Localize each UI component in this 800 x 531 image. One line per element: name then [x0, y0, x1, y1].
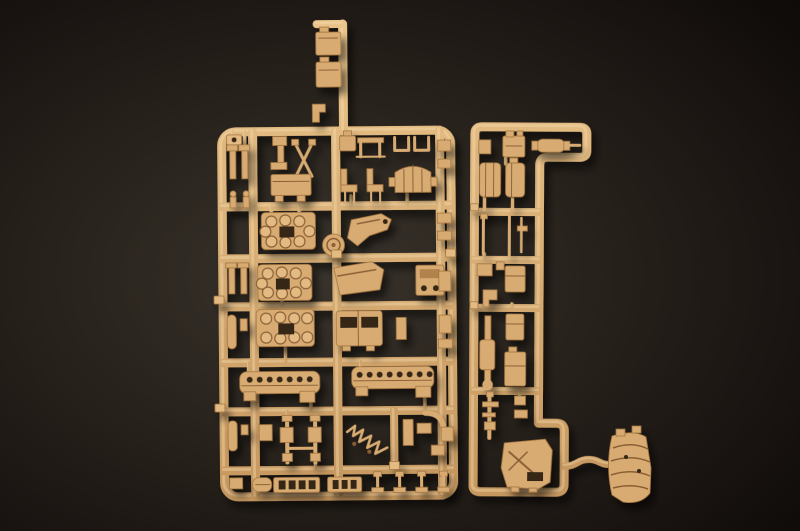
right-sprue-parts-shape — [482, 402, 498, 407]
left-sprue-parts-shape — [438, 487, 450, 492]
left-sprue-parts-shape — [261, 313, 272, 324]
left-sprue-parts-shape — [351, 480, 357, 489]
left-sprue-parts-shape — [308, 427, 321, 442]
left-sprue-parts-shape — [372, 488, 384, 493]
left-sprue-parts-shape — [302, 313, 313, 324]
left-sprue-parts-shape — [383, 219, 388, 224]
left-sprue-parts-shape — [356, 387, 368, 396]
left-sprue-parts-shape — [239, 145, 250, 151]
left-sprue-parts-shape — [302, 332, 313, 343]
left-sprue-parts-shape — [309, 480, 316, 489]
studio-background — [0, 0, 800, 531]
left-sprue-parts-shape — [280, 237, 291, 248]
left-sprue-parts-shape — [276, 288, 287, 299]
left-sprue-parts-shape — [333, 480, 339, 489]
photo-canvas — [0, 0, 800, 531]
left-sprue-parts-shape — [257, 377, 263, 383]
left-sprue-parts-shape — [437, 213, 451, 223]
left-sprue-parts-shape — [342, 346, 350, 351]
left-sprue-parts-shape — [340, 136, 356, 151]
left-sprue-parts-shape — [241, 425, 248, 435]
left-sprue-parts-shape — [240, 319, 247, 331]
left-sprue-parts-shape — [261, 332, 272, 343]
left-sprue-parts-shape — [241, 267, 247, 294]
left-sprue-parts-shape — [279, 480, 286, 489]
left-sprue-parts-shape — [292, 139, 299, 145]
left-sprue-parts-shape — [320, 57, 329, 62]
left-sprue-parts-shape — [421, 285, 427, 291]
left-sprue-parts-shape — [438, 159, 451, 168]
left-sprue-parts-shape — [304, 226, 315, 237]
hatch-part — [316, 62, 341, 87]
shock-absorber-part — [485, 316, 491, 342]
left-sprue-parts-shape — [294, 236, 305, 247]
left-sprue-parts-shape — [309, 139, 316, 145]
right-sprue-parts-shape — [506, 131, 514, 137]
left-sprue-parts-shape — [289, 480, 296, 489]
right-sprue-parts-shape — [529, 488, 537, 492]
left-sprue-parts-shape — [394, 487, 406, 492]
left-sprue-parts-shape — [238, 263, 249, 268]
left-sprue-parts-shape — [361, 317, 378, 328]
right-sprue-parts-shape — [527, 472, 543, 481]
right-sprue-parts-shape — [506, 314, 524, 340]
left-sprue-parts-shape — [287, 376, 293, 382]
left-sprue-parts-shape — [417, 371, 423, 377]
left-sprue-parts-shape — [280, 427, 293, 442]
left-sprue-parts-shape — [266, 236, 277, 247]
runner-tab — [389, 461, 399, 469]
left-sprue-parts-shape — [366, 346, 374, 351]
left-sprue-parts-shape — [228, 421, 237, 451]
left-sprue-parts-shape — [297, 195, 305, 201]
right-sprue-parts-shape — [514, 410, 527, 418]
left-sprue-parts-shape — [242, 385, 318, 386]
right-sprue-parts-shape — [517, 131, 523, 136]
loose-curved-part-shape — [632, 426, 641, 433]
left-sprue-parts-shape — [247, 377, 253, 383]
left-sprue-parts-shape — [300, 278, 311, 289]
left-sprue-parts-shape — [377, 372, 383, 378]
left-sprue-parts-shape — [427, 371, 433, 377]
left-sprue-parts-shape — [227, 145, 238, 151]
hatch-part — [316, 32, 341, 55]
left-sprue-parts-shape — [244, 392, 256, 401]
left-sprue-parts-shape — [340, 317, 357, 328]
left-sprue-parts-shape — [276, 278, 290, 289]
right-sprue-parts-shape — [480, 340, 495, 370]
left-sprue-parts-shape — [280, 215, 291, 226]
loose-curved-part-shape — [616, 429, 625, 436]
left-sprue-parts-shape — [242, 149, 248, 179]
runner-tab — [470, 302, 478, 309]
left-sprue-parts-shape — [320, 27, 329, 32]
left-sprue-parts-shape — [407, 371, 413, 377]
left-sprue-parts-shape — [416, 386, 431, 397]
left-sprue-parts-shape — [438, 140, 451, 151]
cab-front-part — [336, 311, 382, 346]
left-sprue-parts-shape — [367, 185, 383, 192]
right-sprue-parts-shape — [505, 266, 525, 292]
left-sprue-parts-shape — [275, 312, 286, 323]
left-sprue-parts-shape — [403, 419, 413, 445]
fuel-tank-part — [506, 163, 525, 197]
bench-box-part — [271, 174, 311, 195]
left-sprue-parts-shape — [417, 423, 431, 433]
left-sprue-parts-shape — [275, 195, 283, 201]
left-sprue-parts-shape — [352, 442, 356, 446]
left-sprue-parts-shape — [271, 162, 287, 169]
left-sprue-parts-shape — [262, 287, 273, 298]
right-sprue-parts-shape — [479, 140, 491, 154]
left-sprue-parts-shape — [230, 149, 236, 179]
left-sprue-parts-shape — [277, 376, 283, 382]
left-sprue-parts-shape — [437, 231, 451, 240]
right-sprue-parts-shape — [510, 158, 518, 163]
left-sprue-parts-shape — [344, 131, 352, 136]
left-sprue-parts-shape — [310, 453, 320, 461]
left-sprue-parts-shape — [439, 271, 451, 291]
left-sprue-parts-shape — [276, 267, 287, 278]
left-sprue-parts-shape — [389, 177, 395, 186]
left-sprue-parts-shape — [396, 317, 406, 339]
left-sprue-parts-shape — [278, 145, 284, 164]
right-sprue-parts-shape — [484, 422, 495, 430]
right-sprue-parts-shape — [514, 396, 525, 405]
right-sprue-parts-shape — [532, 141, 538, 150]
left-sprue-parts-shape — [229, 267, 235, 294]
right-sprue-parts-shape — [505, 352, 526, 386]
left-sprue-parts-shape — [420, 269, 440, 278]
left-sprue-parts-shape — [230, 197, 236, 208]
left-sprue-parts-shape — [290, 287, 301, 298]
top-extension-runner-highlight — [342, 23, 343, 130]
left-sprue-parts-shape — [232, 137, 237, 142]
fuel-tank-part — [480, 163, 501, 197]
left-sprue-parts-shape — [367, 372, 373, 378]
left-sprue-parts-shape — [282, 415, 292, 421]
left-sprue-parts-shape — [416, 487, 428, 492]
left-sprue-parts-shape — [230, 191, 236, 197]
left-sprue-parts-shape — [297, 376, 303, 382]
runner-tab — [470, 204, 478, 211]
left-sprue-parts-shape — [279, 226, 294, 237]
left-sprue-parts-shape — [332, 243, 336, 247]
loose-curved-part — [609, 426, 652, 503]
muffler-part — [537, 139, 565, 152]
curved-fender-part — [609, 433, 652, 503]
left-sprue-parts-shape — [438, 339, 452, 348]
loose-curved-part-shape — [637, 469, 641, 473]
hull-plate-part — [501, 439, 552, 489]
right-sprue-parts-shape — [485, 370, 491, 388]
left-sprue-parts-shape — [441, 427, 453, 441]
left-sprue-parts-shape — [262, 268, 273, 279]
left-sprue-parts-shape — [226, 263, 237, 268]
runner-tab — [214, 296, 224, 304]
runner-tab — [446, 249, 456, 257]
left-sprue-parts-shape — [260, 226, 271, 237]
runner-tab — [332, 250, 342, 258]
left-sprue-parts-shape — [433, 285, 439, 291]
left-sprue-parts-shape — [243, 191, 249, 197]
left-sprue-parts-shape — [290, 268, 301, 279]
left-sprue-parts-shape — [431, 177, 437, 186]
left-sprue-parts-shape — [342, 480, 348, 489]
left-sprue-parts-shape — [300, 391, 315, 402]
left-sprue-parts-shape — [289, 313, 300, 324]
loose-curved-part-shape — [624, 455, 628, 459]
left-sprue-parts-shape — [259, 425, 272, 441]
right-sprue-parts-shape — [482, 413, 495, 417]
left-sprue-parts-shape — [273, 136, 287, 145]
left-sprue-parts-shape — [439, 315, 451, 333]
left-sprue-parts-shape — [275, 333, 286, 344]
left-sprue-parts-shape — [354, 380, 432, 381]
right-sprue-parts-shape — [496, 262, 504, 270]
left-sprue-parts-shape — [282, 453, 292, 461]
left-sprue-parts-shape — [278, 323, 294, 334]
left-sprue-parts-shape — [357, 372, 363, 378]
left-sprue-runners-highlight — [393, 409, 394, 468]
left-sprue-parts-shape — [266, 216, 277, 227]
right-sprue-parts-shape — [477, 264, 492, 276]
left-sprue-parts-shape — [397, 371, 403, 377]
left-sprue-parts-shape — [310, 415, 320, 421]
left-sprue-parts-shape — [243, 197, 249, 208]
left-sprue-parts-shape — [299, 480, 306, 489]
right-sprue-parts-shape — [511, 487, 519, 492]
left-sprue-parts-shape — [431, 445, 444, 455]
sloped-plate-part — [334, 262, 384, 295]
left-sprue-parts-shape — [294, 216, 305, 227]
runner-tab — [215, 404, 225, 412]
left-sprue-parts-shape — [341, 185, 357, 192]
left-sprue-parts-shape — [267, 377, 273, 383]
chassis-beam-part — [352, 366, 434, 389]
left-sprue-parts-shape — [227, 315, 236, 349]
left-sprue-parts-shape — [387, 372, 393, 378]
right-sprue-parts-shape — [509, 347, 517, 352]
left-sprue-parts-shape — [230, 478, 243, 489]
model-kit-sprues-photo — [0, 0, 800, 531]
left-sprue-parts-shape — [367, 450, 371, 454]
left-sprue-parts-shape — [307, 376, 313, 382]
